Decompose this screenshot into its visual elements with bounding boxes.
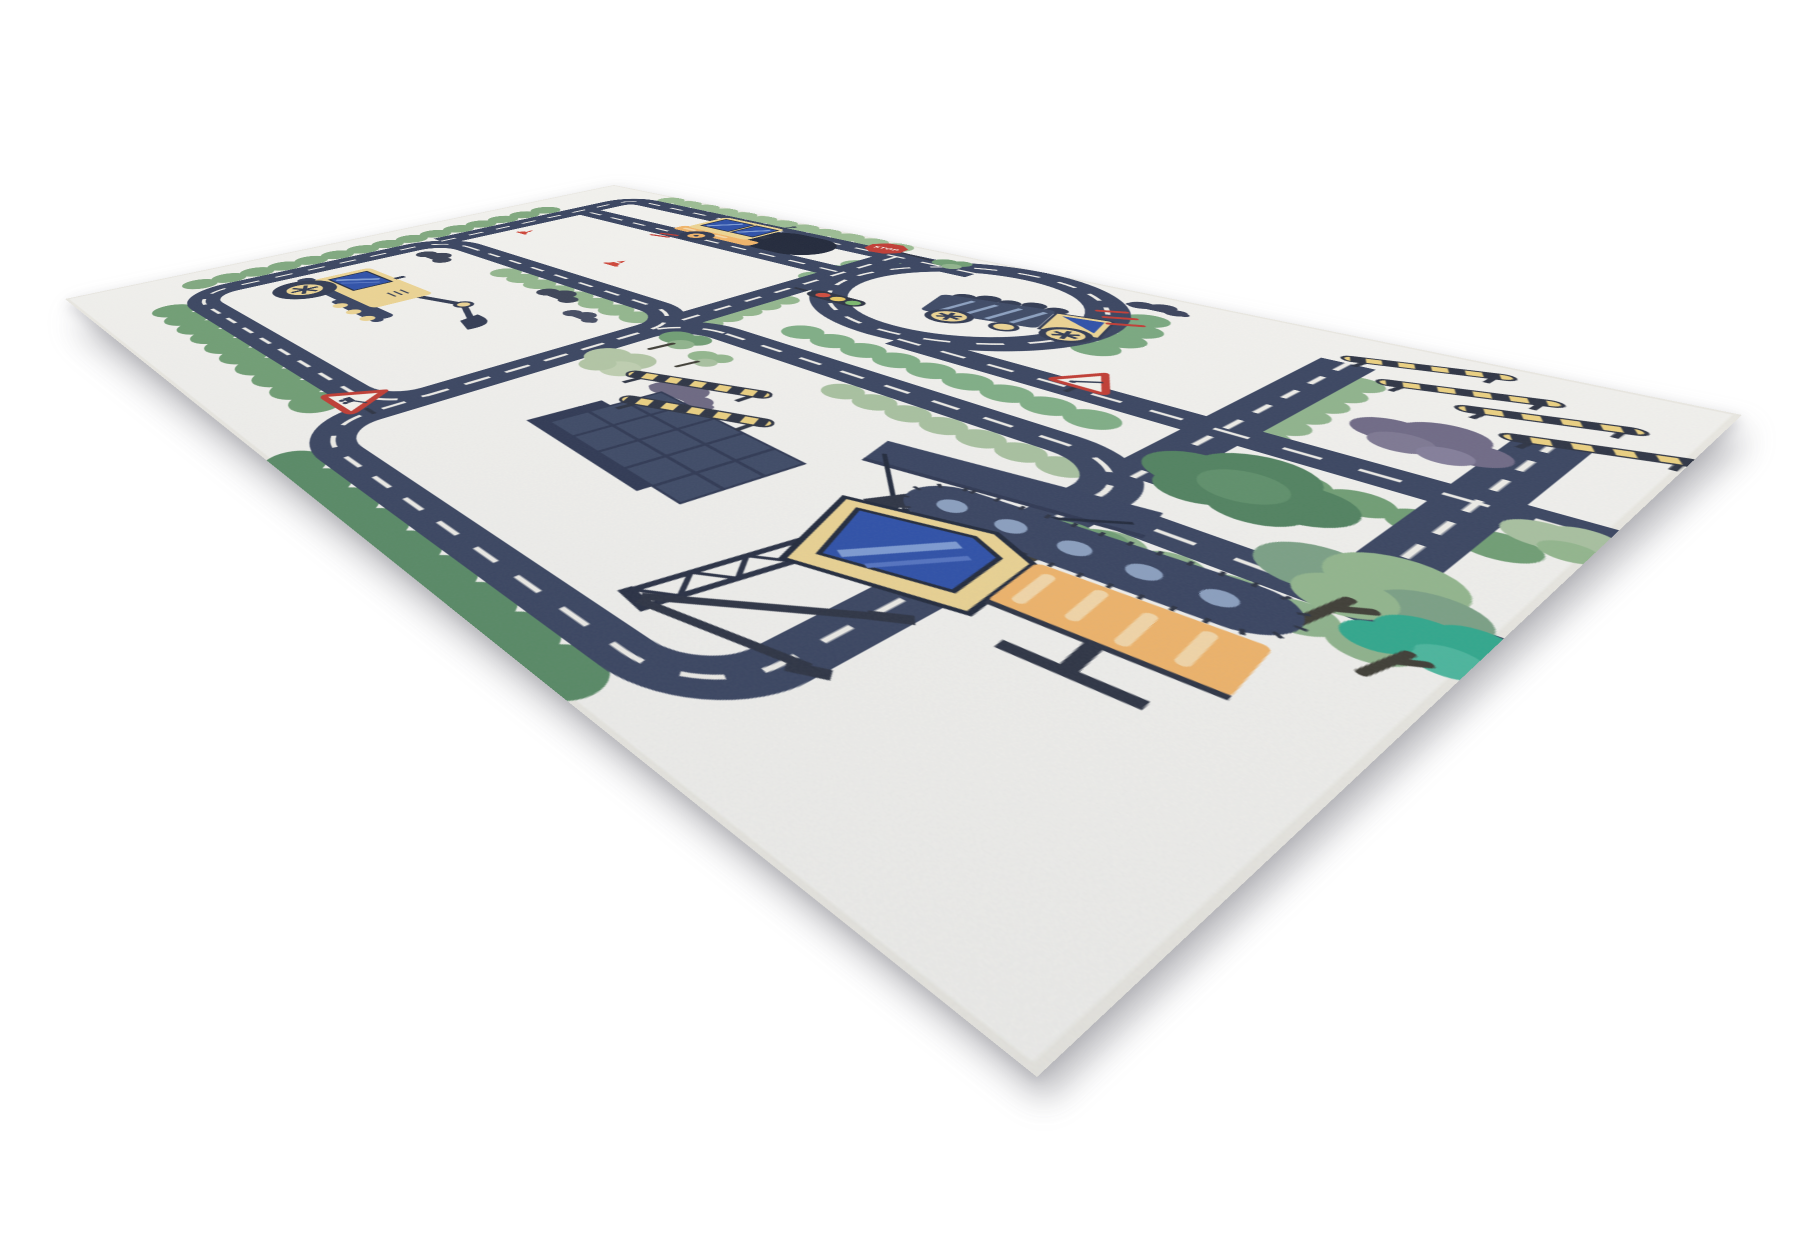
rug-drop-shadow: STOP xyxy=(0,0,1800,1256)
rug-artwork: STOP xyxy=(65,185,1742,1077)
product-photo-scene: STOP xyxy=(0,0,1800,1256)
lighting-overlay xyxy=(65,185,1742,1077)
play-rug: STOP xyxy=(65,185,1742,1077)
